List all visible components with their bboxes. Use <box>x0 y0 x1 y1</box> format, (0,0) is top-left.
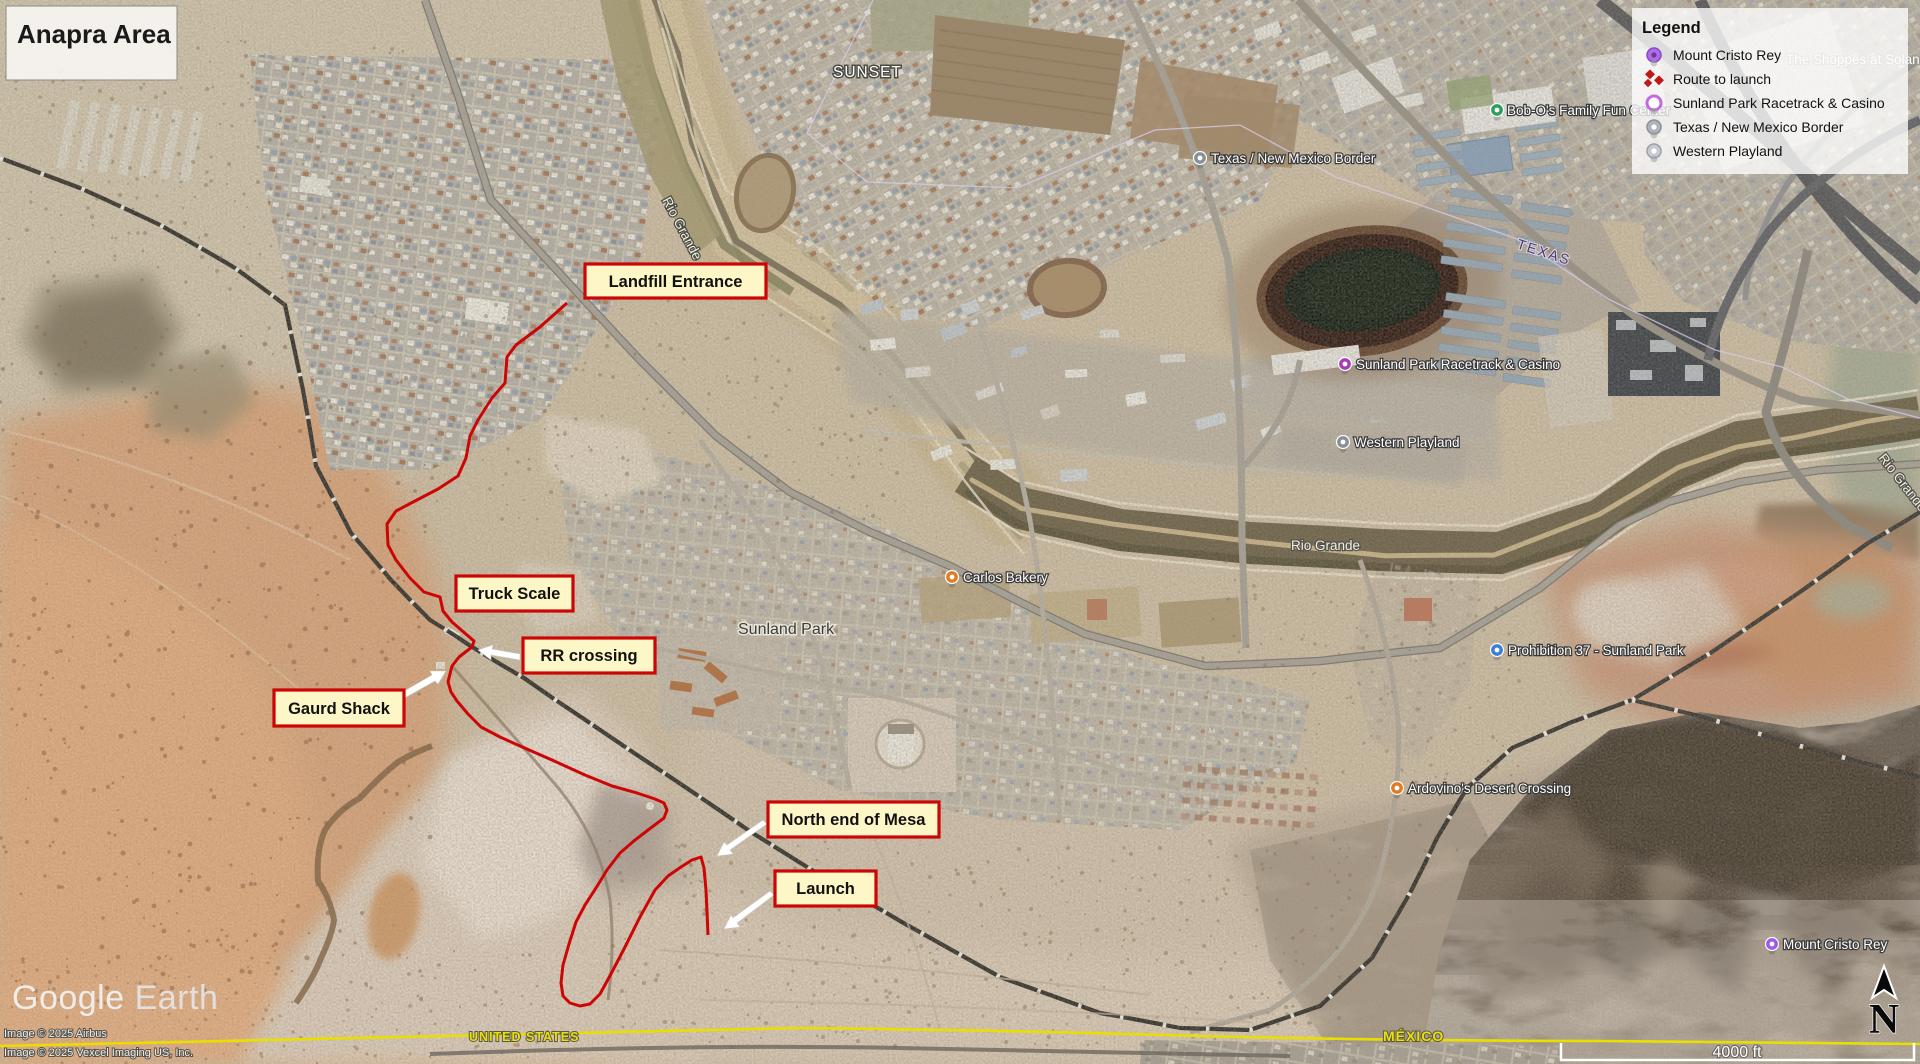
svg-text:Image © 2025 Airbus: Image © 2025 Airbus <box>4 1028 107 1040</box>
svg-text:Launch: Launch <box>796 880 855 898</box>
svg-text:SUNSET: SUNSET <box>833 64 902 81</box>
svg-text:Sunland Park: Sunland Park <box>738 621 835 638</box>
svg-text:MÉXICO: MÉXICO <box>1383 1028 1444 1044</box>
svg-text:Image © 2025 Vexcel Imaging US: Image © 2025 Vexcel Imaging US, Inc. <box>4 1047 193 1059</box>
svg-text:N: N <box>1869 997 1899 1043</box>
svg-text:Route to launch: Route to launch <box>1673 71 1771 87</box>
svg-text:Google Earth: Google Earth <box>12 979 218 1017</box>
svg-text:UNITED STATES: UNITED STATES <box>469 1030 579 1044</box>
svg-text:RR crossing: RR crossing <box>540 647 637 665</box>
svg-text:Sunland Park Racetrack & Casin: Sunland Park Racetrack & Casino <box>1673 95 1885 111</box>
svg-text:Mount Cristo Rey: Mount Cristo Rey <box>1783 937 1888 952</box>
svg-text:North end of Mesa: North end of Mesa <box>782 811 927 829</box>
svg-text:Western Playland: Western Playland <box>1673 143 1782 159</box>
svg-text:Gaurd Shack: Gaurd Shack <box>288 700 391 718</box>
svg-text:Anapra Area: Anapra Area <box>17 19 171 49</box>
svg-text:Rio Grande: Rio Grande <box>1291 538 1360 553</box>
svg-text:Truck Scale: Truck Scale <box>469 585 561 603</box>
svg-text:Sunland Park Racetrack & Casin: Sunland Park Racetrack & Casino <box>1356 357 1560 372</box>
svg-text:Prohibition 37 - Sunland Park: Prohibition 37 - Sunland Park <box>1508 643 1684 658</box>
svg-text:Landfill Entrance: Landfill Entrance <box>609 273 743 291</box>
svg-text:Mount Cristo Rey: Mount Cristo Rey <box>1673 47 1781 63</box>
svg-text:Texas / New Mexico Border: Texas / New Mexico Border <box>1211 151 1376 166</box>
svg-text:Carlos Bakery: Carlos Bakery <box>963 570 1048 585</box>
svg-text:Western Playland: Western Playland <box>1354 435 1460 450</box>
svg-text:4000 ft: 4000 ft <box>1713 1044 1762 1061</box>
svg-text:Texas / New Mexico Border: Texas / New Mexico Border <box>1673 119 1844 135</box>
svg-text:Legend: Legend <box>1642 19 1701 37</box>
svg-text:Ardovino's Desert Crossing: Ardovino's Desert Crossing <box>1408 781 1571 796</box>
